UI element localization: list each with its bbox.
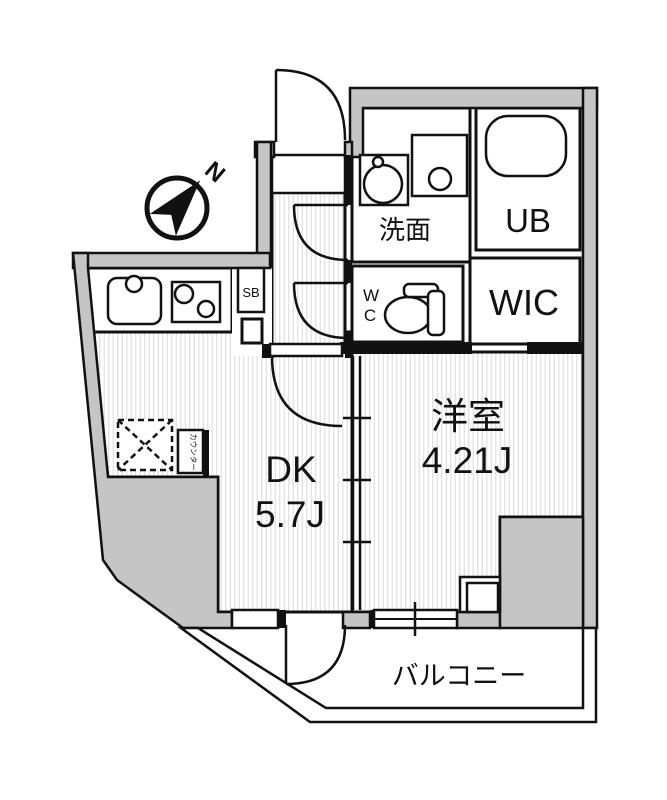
washbasin-faucet [373,157,383,167]
dk-size-label: 5.7J [255,494,325,535]
refrigerator-space [118,420,172,470]
kitchen-faucet [126,276,142,292]
bottom-wall-pier-2 [457,612,500,628]
unit-bath-label: UB [505,202,551,239]
hall-left-wall [257,142,271,267]
balcony-label: バルコニー [392,661,526,691]
washbasin-bowl [364,165,402,203]
stove-burner-2 [198,301,214,317]
washroom-label: 洗面 [379,215,431,245]
entrance-door-swing [276,70,345,140]
bedroom-top-wall-b [527,342,583,354]
dk-window [232,610,278,628]
walk-in-closet-label: WIC [489,282,559,323]
balcony-door-swing [286,625,345,684]
shoe-box-label: SB [242,285,259,300]
toilet-tank [428,291,444,335]
bedroom-top-wall-a [340,342,472,354]
entrance-wall-jamb [345,142,352,157]
storage-box [242,319,262,343]
bathtub [486,116,566,176]
western-room-size-label: 4.21J [422,440,513,481]
floor-plan-drawing: N 洗面 UB WIC W C SB DK 5.7J 洋室 4.21J バルコニ… [0,0,667,800]
toilet-bowl [385,297,431,333]
balcony-fence [181,628,596,722]
floor-plan-page: N 洗面 UB WIC W C SB DK 5.7J 洋室 4.21J バルコニ… [0,0,667,800]
dk-door-leaf [270,344,342,356]
compass: N [147,156,230,238]
bottom-wall-pier-1 [343,612,370,628]
compass-north-label: N [199,156,230,188]
stove-burner-1 [175,285,193,303]
counter-label: カウンター [189,433,198,471]
western-room-label: 洋室 [431,396,505,437]
hall-right-wall-b [345,260,352,283]
bedroom-corner-duct-inner [467,583,498,612]
corner-column [500,517,583,628]
toilet-label-c: C [364,306,376,325]
toilet-label-w: W [363,286,379,305]
washer-drain [429,168,451,190]
hall-right-wall-a [345,155,352,205]
entry-genkan [272,155,345,193]
kitchen-top-wall [73,253,270,268]
dk-label: DK [265,449,317,490]
right-wall [583,88,597,628]
